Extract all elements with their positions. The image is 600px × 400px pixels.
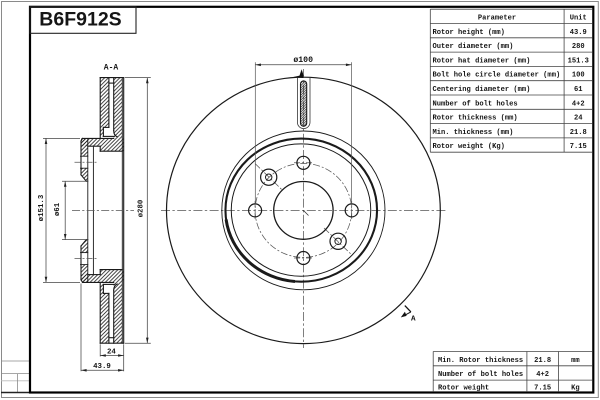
svg-text:4+2: 4+2 — [536, 371, 549, 379]
svg-text:Rotor height (mm): Rotor height (mm) — [433, 29, 505, 37]
svg-text:7.15: 7.15 — [534, 385, 551, 393]
svg-text:24: 24 — [574, 115, 583, 123]
svg-text:151.3: 151.3 — [568, 57, 589, 65]
svg-text:Bolt hole circle diameter (mm): Bolt hole circle diameter (mm) — [433, 72, 561, 80]
svg-text:43.9: 43.9 — [570, 29, 587, 37]
svg-text:A: A — [411, 316, 416, 324]
svg-text:ø151.3: ø151.3 — [38, 194, 46, 221]
svg-text:ø61: ø61 — [54, 202, 62, 216]
svg-text:Min. Rotor thickness: Min. Rotor thickness — [438, 357, 523, 365]
svg-text:100: 100 — [572, 72, 585, 80]
svg-text:B6F912S: B6F912S — [39, 9, 121, 31]
svg-text:24: 24 — [107, 349, 116, 357]
svg-text:Rotor weight (Kg): Rotor weight (Kg) — [433, 143, 505, 151]
svg-text:7.15: 7.15 — [570, 143, 587, 151]
svg-text:21.8: 21.8 — [570, 129, 587, 137]
svg-text:mm: mm — [571, 357, 580, 365]
svg-text:ø100: ø100 — [293, 56, 313, 65]
svg-text:4+2: 4+2 — [572, 100, 585, 108]
svg-text:A-A: A-A — [104, 63, 119, 72]
svg-text:Unit: Unit — [570, 15, 587, 23]
svg-text:Rotor thickness (mm): Rotor thickness (mm) — [433, 115, 518, 123]
svg-text:61: 61 — [574, 86, 583, 94]
svg-text:Parameter: Parameter — [478, 15, 516, 23]
svg-text:Centering diameter (mm): Centering diameter (mm) — [433, 86, 531, 94]
svg-text:ø280: ø280 — [137, 199, 145, 217]
svg-text:Min. thickness (mm): Min. thickness (mm) — [433, 129, 514, 137]
svg-text:Number of bolt holes: Number of bolt holes — [433, 100, 518, 108]
svg-text:43.9: 43.9 — [93, 363, 111, 371]
svg-text:280: 280 — [572, 43, 585, 51]
svg-text:Rotor hat diameter (mm): Rotor hat diameter (mm) — [433, 57, 531, 65]
svg-text:Outer diameter (mm): Outer diameter (mm) — [433, 43, 514, 51]
svg-text:Kg: Kg — [571, 385, 580, 393]
svg-text:21.8: 21.8 — [534, 357, 551, 365]
svg-text:Rotor weight: Rotor weight — [438, 385, 489, 393]
svg-text:Number of bolt holes: Number of bolt holes — [438, 371, 523, 379]
